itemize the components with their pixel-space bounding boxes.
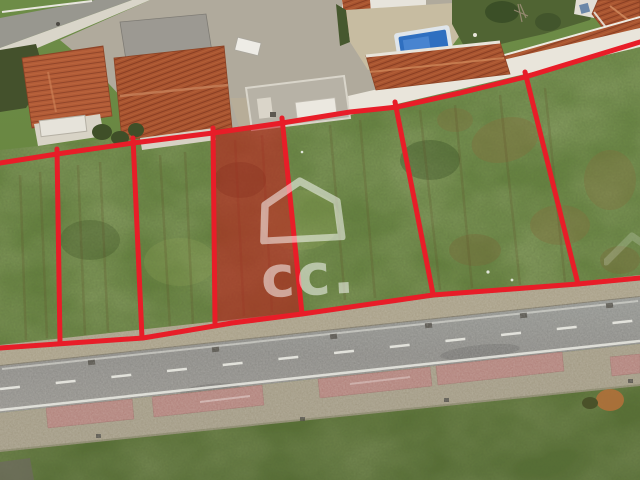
aerial-scene bbox=[0, 0, 640, 480]
terrace-object bbox=[270, 112, 276, 117]
dark-shrub bbox=[582, 397, 598, 409]
plot-divider-line-3 bbox=[213, 128, 215, 323]
aerial-photo: cc. bbox=[0, 0, 640, 480]
street-object bbox=[56, 22, 60, 26]
plot-divider-line-1 bbox=[57, 149, 60, 343]
orange-shrub bbox=[596, 389, 624, 411]
